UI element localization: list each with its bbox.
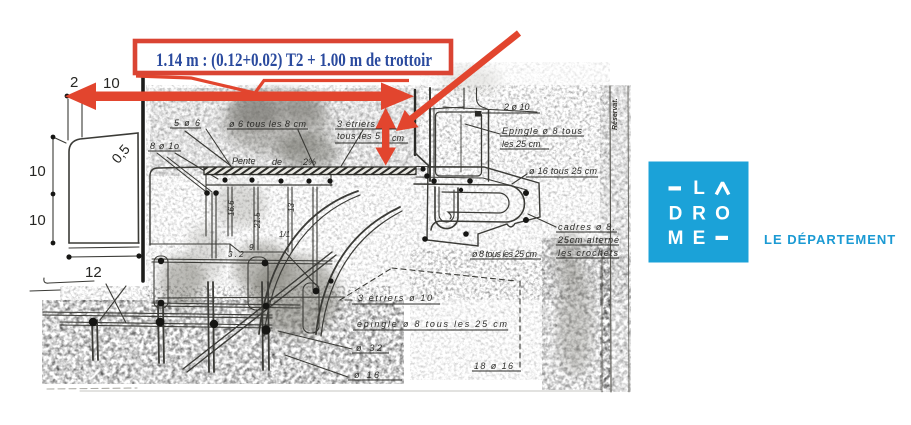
svg-text:3 étriers ø 10: 3 étriers ø 10 <box>358 293 432 303</box>
svg-text:ø 16 tous 25 cm: ø 16 tous 25 cm <box>529 166 598 176</box>
svg-text:O: O <box>715 204 730 225</box>
svg-text:12: 12 <box>85 264 102 281</box>
svg-text:Réservat.: Réservat. <box>612 98 619 130</box>
svg-text:13: 13 <box>287 203 296 212</box>
svg-text:25cm alterné: 25cm alterné <box>557 235 619 245</box>
svg-text:ø 32: ø 32 <box>356 343 382 353</box>
svg-text:cadres ø 8.: cadres ø 8. <box>558 222 615 232</box>
svg-text:ø 6 tous les 8 cm: ø 6 tous les 8 cm <box>229 119 307 129</box>
svg-text:tous les 5: tous les 5 <box>337 131 381 141</box>
svg-text:0,5: 0,5 <box>108 141 133 166</box>
svg-text:LE DÉPARTEMENT: LE DÉPARTEMENT <box>764 232 896 247</box>
svg-text:5 ø 6: 5 ø 6 <box>174 118 200 128</box>
svg-text:2 ø 10: 2 ø 10 <box>503 102 530 112</box>
svg-text:2: 2 <box>70 74 78 91</box>
svg-text:L: L <box>693 178 705 199</box>
svg-text:10: 10 <box>29 163 46 180</box>
svg-text:21.5: 21.5 <box>253 212 262 229</box>
svg-text:cm: cm <box>392 133 405 143</box>
svg-text:10: 10 <box>103 75 120 92</box>
svg-text:18 ø 16: 18 ø 16 <box>474 361 513 371</box>
svg-text:3 étriers: 3 étriers <box>337 119 376 129</box>
svg-text:les crochets: les crochets <box>558 248 619 258</box>
svg-text:ø 16: ø 16 <box>354 370 379 380</box>
svg-text:8 ø 1o: 8 ø 1o <box>150 141 179 151</box>
svg-text:de: de <box>272 157 282 167</box>
svg-text:R: R <box>692 204 706 225</box>
svg-text:2%: 2% <box>302 157 316 167</box>
svg-text:1.14 m : (0.12+0.02) T2 + 1.00: 1.14 m : (0.12+0.02) T2 + 1.00 m de trot… <box>156 51 432 71</box>
svg-text:3 . 2: 3 . 2 <box>228 250 244 259</box>
svg-text:9: 9 <box>249 243 254 252</box>
svg-text:D: D <box>669 204 683 225</box>
svg-text:Pente: Pente <box>232 156 256 166</box>
svg-text:E: E <box>693 228 706 249</box>
svg-text:Epingle ø 8 tous: Epingle ø 8 tous <box>502 126 583 136</box>
svg-text:10: 10 <box>29 212 46 229</box>
svg-text:ø 8 tous les 25 cm: ø 8 tous les 25 cm <box>472 249 538 259</box>
svg-text:M: M <box>668 228 684 249</box>
svg-text:les 25 cm: les 25 cm <box>502 139 541 149</box>
svg-text:16.6: 16.6 <box>227 200 236 216</box>
svg-text:1/1: 1/1 <box>279 230 290 239</box>
